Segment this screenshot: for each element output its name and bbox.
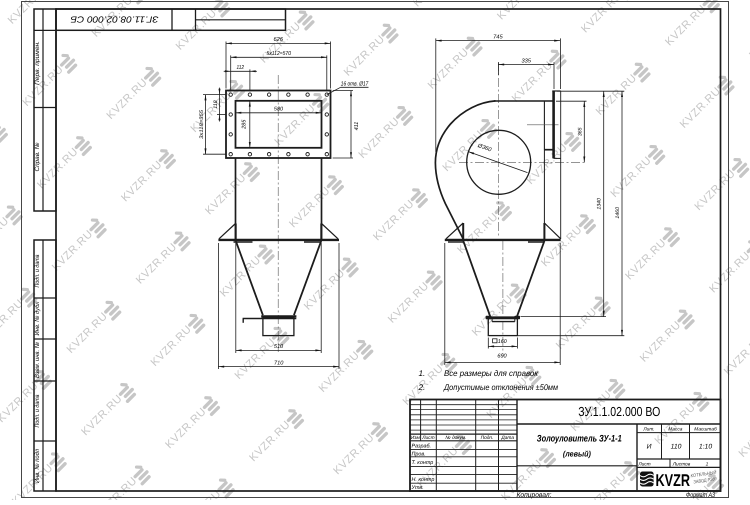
- svg-text:Золоуловитель ЗУ-1-1: Золоуловитель ЗУ-1-1: [537, 433, 622, 444]
- svg-text:745: 745: [493, 34, 503, 40]
- svg-text:Допустимые отклонения ±50мм: Допустимые отклонения ±50мм: [443, 383, 558, 392]
- svg-text:1460: 1460: [615, 207, 621, 219]
- svg-text:1: 1: [706, 462, 709, 468]
- svg-text:1.: 1.: [419, 369, 426, 378]
- svg-text:Справ. №: Справ. №: [34, 142, 41, 171]
- svg-text:3x118=355: 3x118=355: [199, 110, 205, 139]
- svg-text:690: 690: [497, 353, 507, 359]
- svg-text:KVZR: KVZR: [656, 471, 691, 490]
- svg-text:ЗГ.11.08.02.000 СБ: ЗГ.11.08.02.000 СБ: [70, 14, 158, 24]
- svg-text:Н. контр: Н. контр: [412, 477, 435, 483]
- svg-text:Подп.: Подп.: [481, 435, 494, 441]
- svg-text:И: И: [647, 443, 652, 450]
- svg-text:Формат А3: Формат А3: [686, 492, 715, 499]
- svg-text:626: 626: [274, 37, 284, 43]
- svg-text:112: 112: [237, 65, 245, 71]
- svg-text:Утв.: Утв.: [411, 485, 424, 491]
- svg-text:Лист: Лист: [421, 435, 434, 441]
- svg-text:Разраб.: Разраб.: [412, 443, 432, 449]
- svg-text:160: 160: [498, 339, 507, 345]
- svg-text:710: 710: [274, 360, 284, 366]
- svg-text:Копировал:: Копировал:: [517, 492, 552, 499]
- svg-text:411: 411: [354, 122, 360, 131]
- svg-text:285: 285: [241, 119, 247, 130]
- svg-text:Дата: Дата: [500, 435, 514, 441]
- svg-text:Масштаб: Масштаб: [694, 427, 717, 433]
- svg-text:Инв. № дубл: Инв. № дубл: [34, 301, 41, 335]
- svg-text:Лист: Лист: [637, 462, 650, 468]
- svg-text:Т. контр: Т. контр: [412, 460, 434, 466]
- svg-text:2.: 2.: [418, 383, 426, 392]
- svg-text:Изм: Изм: [411, 435, 421, 441]
- svg-text:Перв. примен.: Перв. примен.: [34, 41, 41, 85]
- svg-text:110: 110: [671, 443, 682, 450]
- svg-text:Масса: Масса: [668, 427, 683, 433]
- svg-text:Лит.: Лит.: [642, 427, 654, 433]
- svg-text:580: 580: [274, 107, 284, 113]
- svg-text:Листов: Листов: [672, 462, 691, 468]
- svg-text:5x112=570: 5x112=570: [267, 51, 292, 57]
- svg-text:365: 365: [578, 127, 584, 136]
- svg-text:Подп. и дата: Подп. и дата: [34, 394, 41, 427]
- svg-text:1340: 1340: [597, 198, 603, 210]
- svg-text:Инв. № подл: Инв. № подл: [34, 449, 41, 483]
- svg-text:Подп. и дата: Подп. и дата: [34, 254, 41, 287]
- svg-text:Взам. инв. №: Взам. инв. №: [34, 342, 41, 378]
- svg-text:335: 335: [521, 58, 531, 64]
- svg-text:Пров.: Пров.: [412, 451, 426, 457]
- svg-text:16 отв. Ø17: 16 отв. Ø17: [341, 81, 369, 88]
- svg-text:ЗУ.1.1.02.000 ВО: ЗУ.1.1.02.000 ВО: [578, 404, 660, 419]
- svg-text:1:10: 1:10: [699, 443, 712, 450]
- svg-text:Все размеры для справок: Все размеры для справок: [444, 369, 539, 378]
- svg-text:(левый): (левый): [563, 450, 591, 459]
- svg-text:118: 118: [213, 100, 219, 108]
- svg-text:510: 510: [274, 344, 284, 350]
- svg-text:№ докум.: № докум.: [445, 435, 466, 441]
